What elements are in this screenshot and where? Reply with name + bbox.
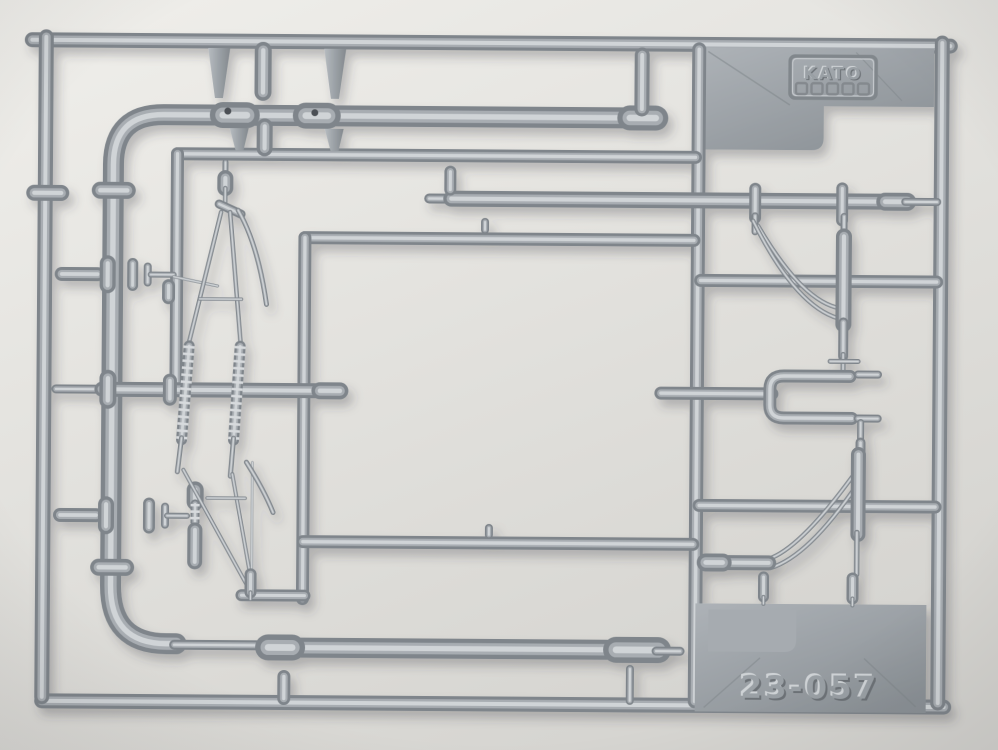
sprue-photo: KATO KATO KATO 23-057 23-057 23-057	[0, 0, 998, 750]
sprue-canvas: KATO KATO KATO 23-057 23-057 23-057	[0, 0, 998, 750]
vignette-overlay	[0, 0, 998, 750]
